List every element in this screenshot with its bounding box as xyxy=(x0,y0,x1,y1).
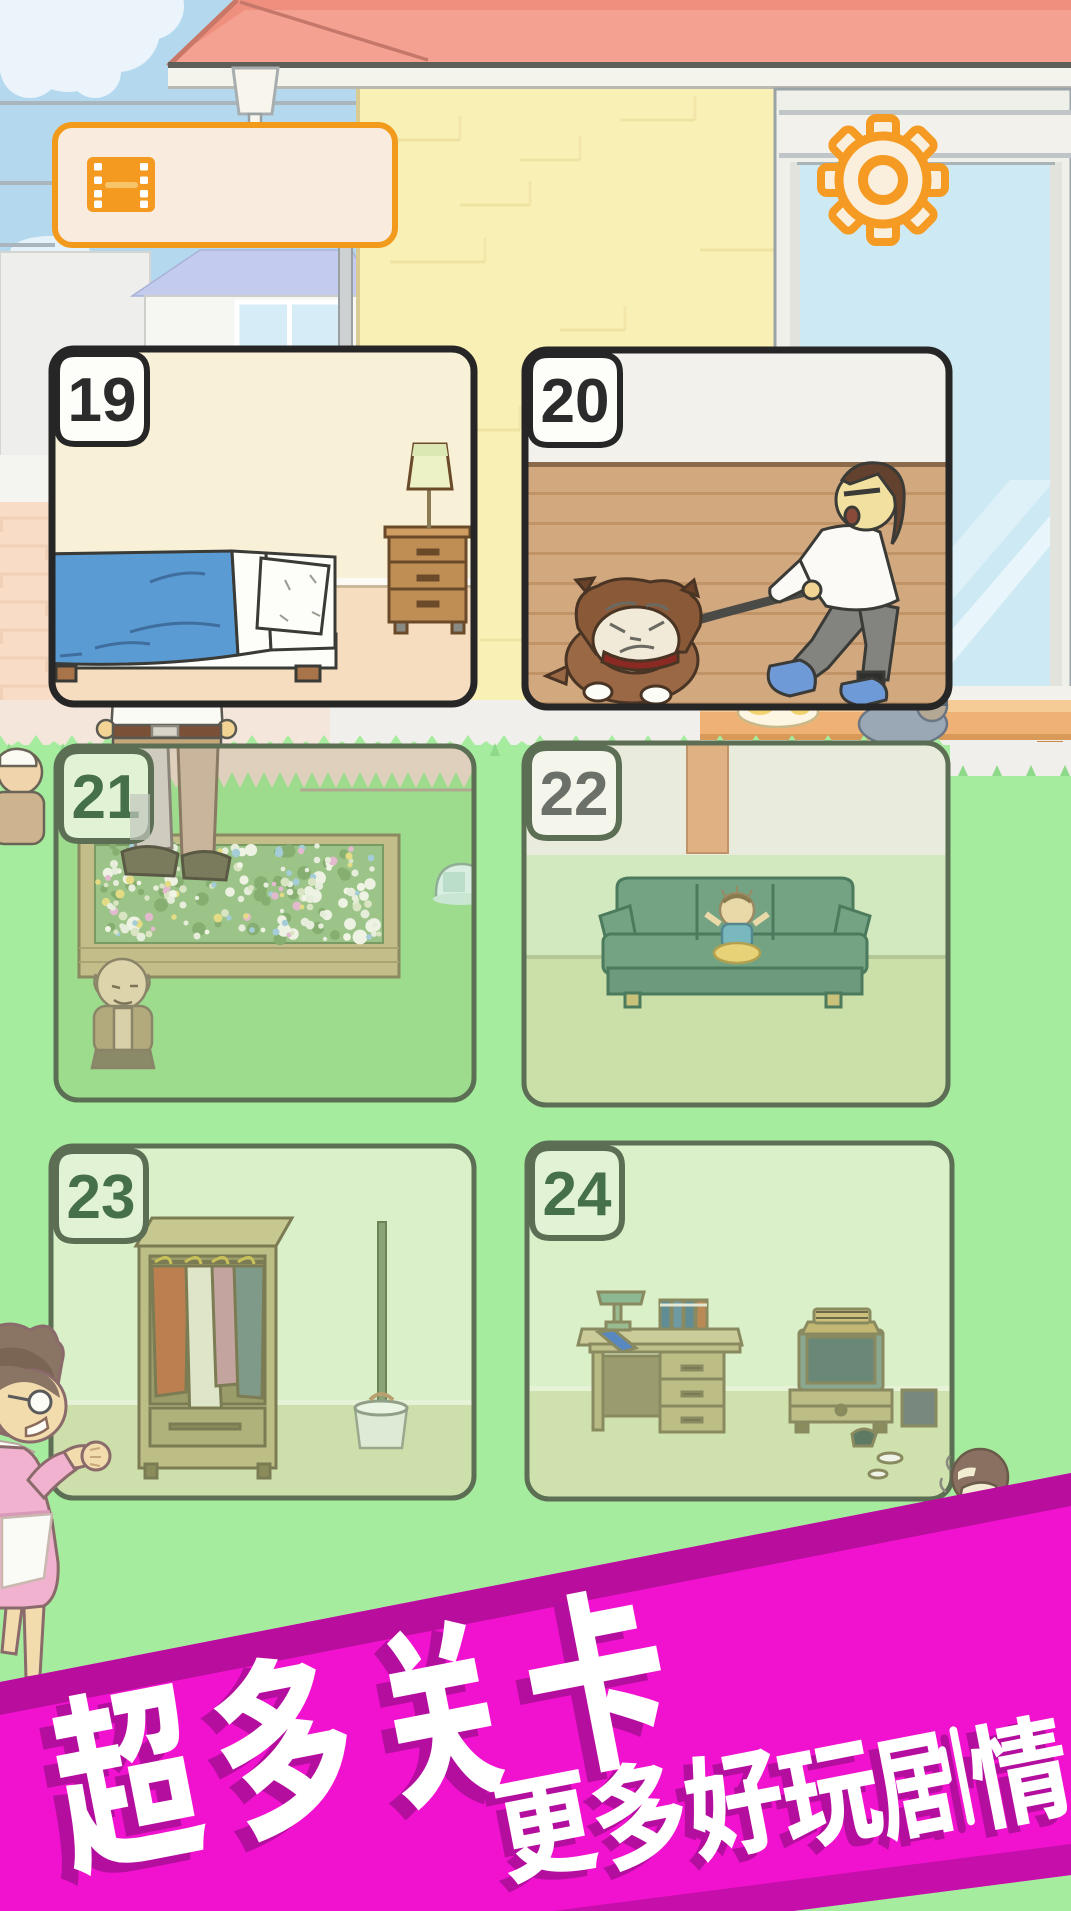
svg-text:20: 20 xyxy=(541,367,610,436)
svg-text:19: 19 xyxy=(68,366,137,435)
svg-text:22: 22 xyxy=(540,760,609,829)
svg-text:23: 23 xyxy=(67,1163,136,1232)
svg-text:24: 24 xyxy=(543,1160,612,1229)
